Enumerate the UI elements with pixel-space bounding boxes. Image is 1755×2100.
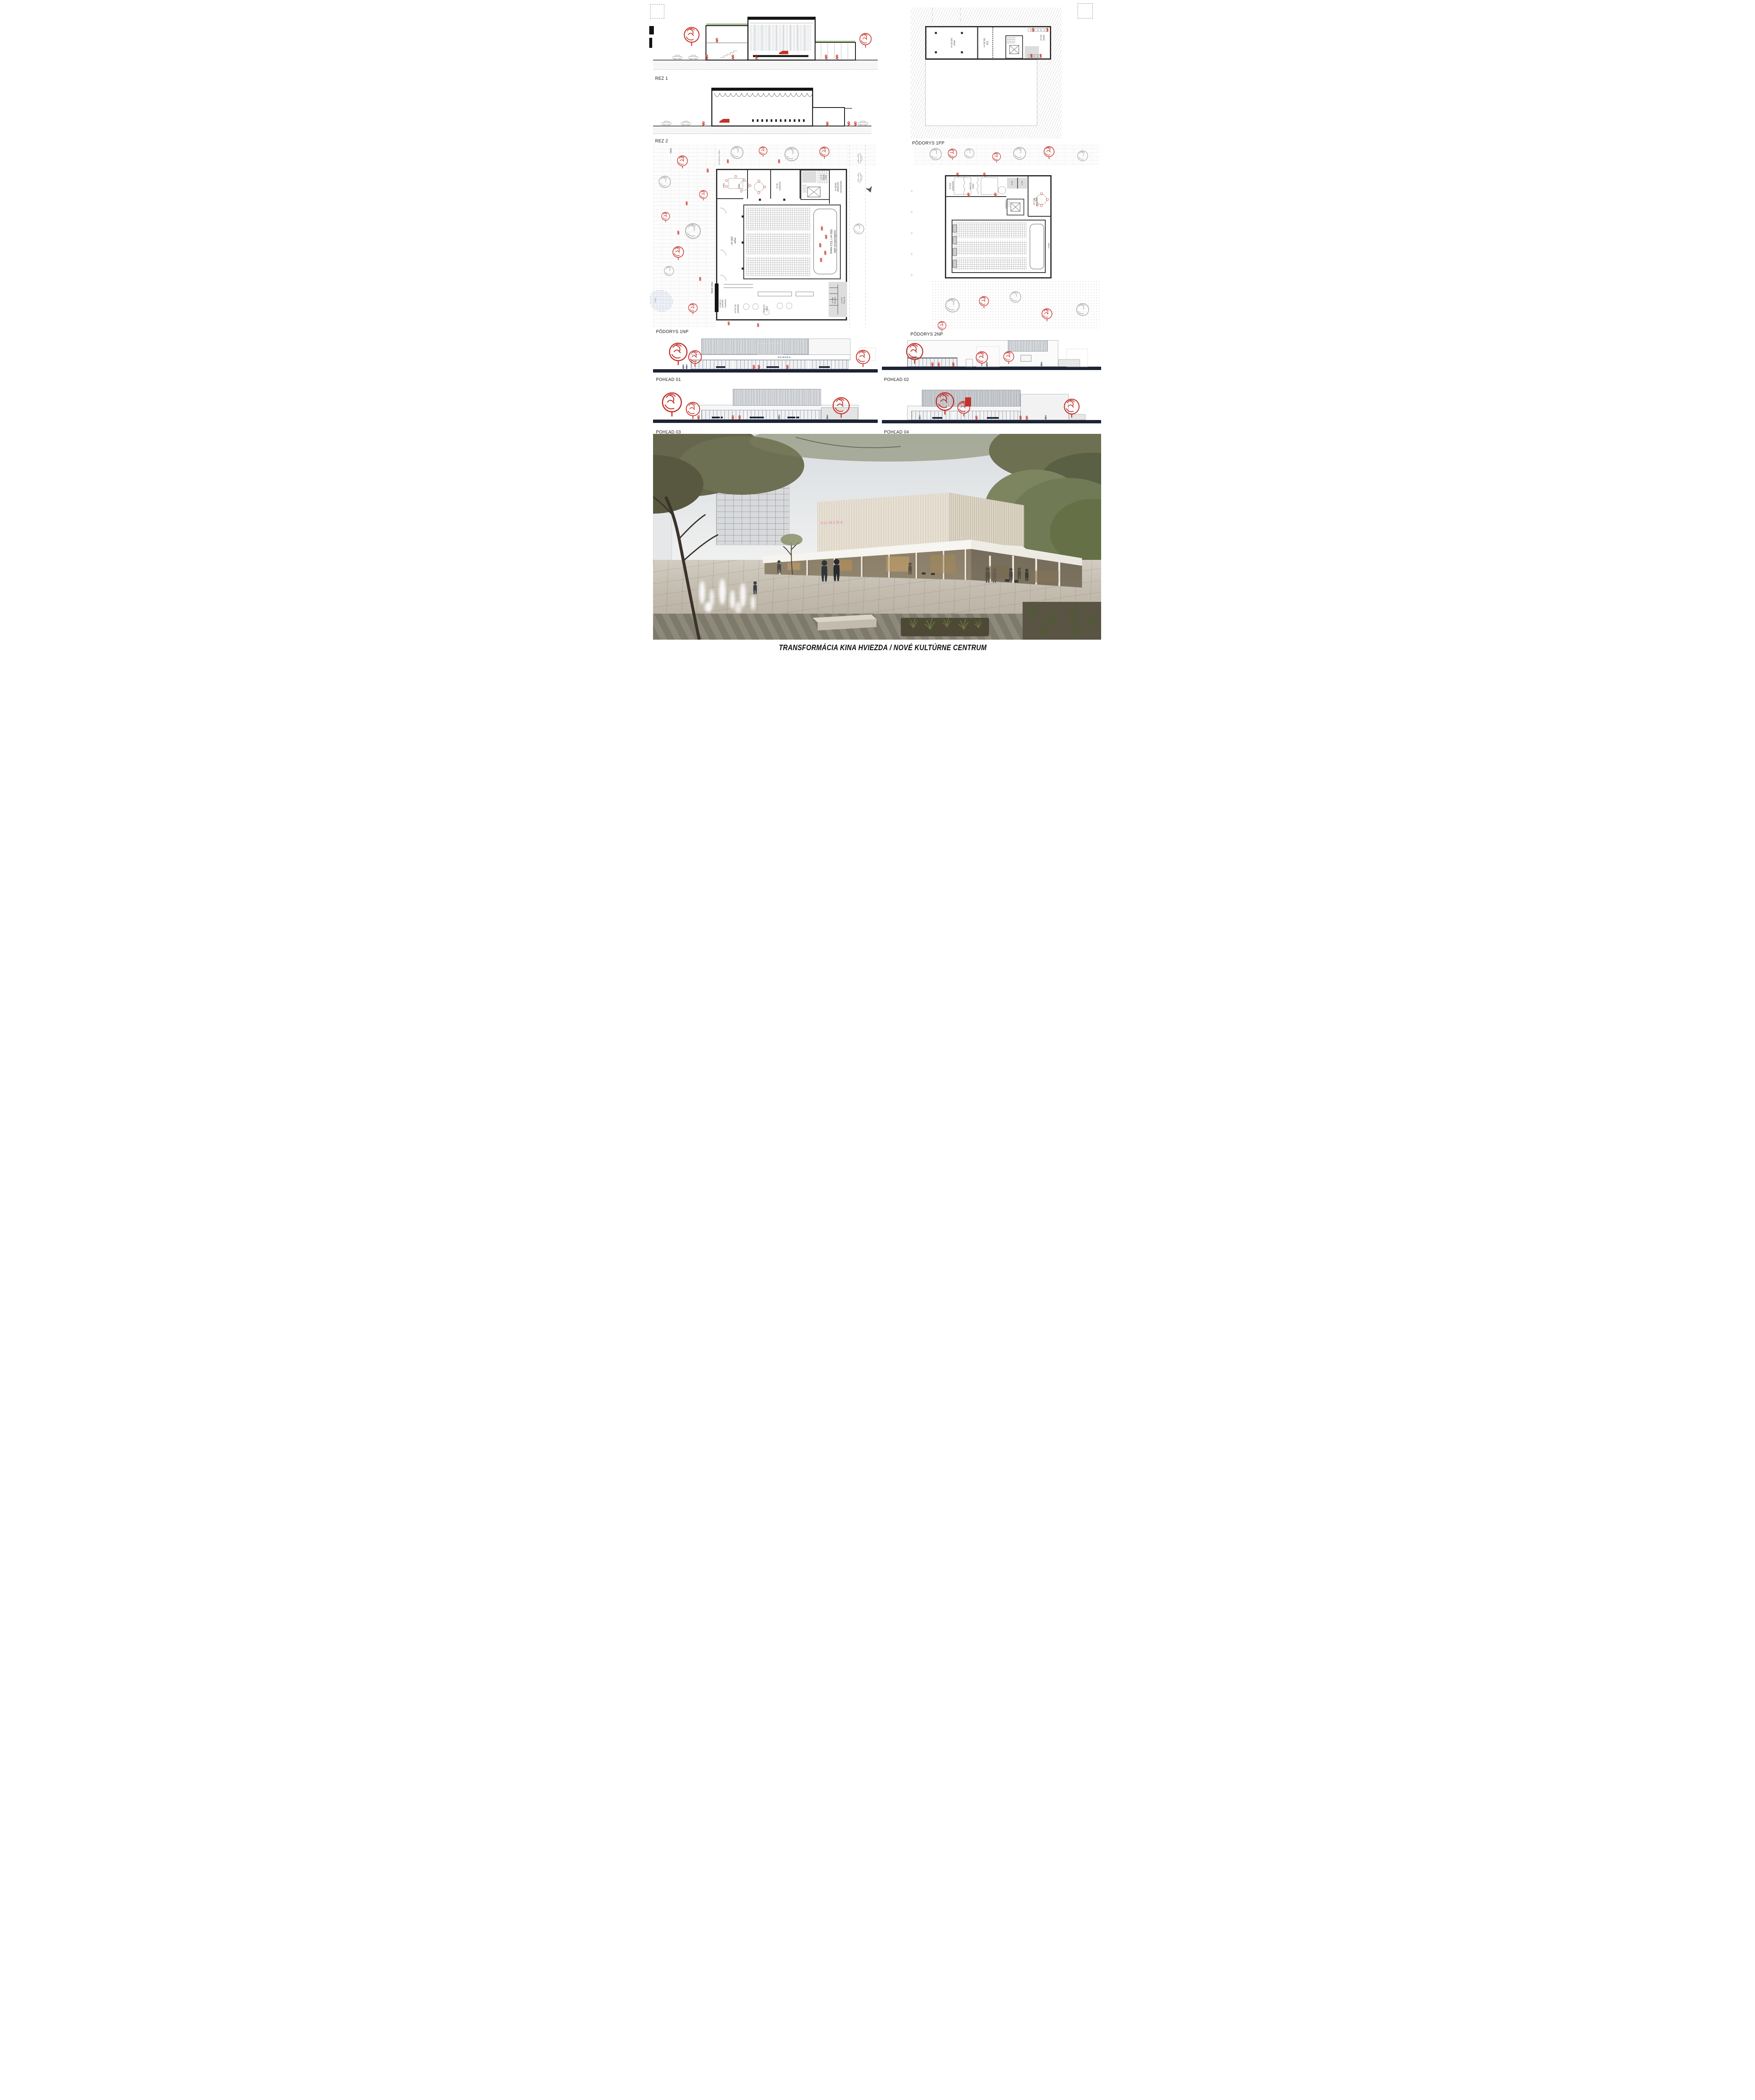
label-hlavny-vstup: hlavný vstup bbox=[711, 282, 714, 294]
room-label-backstage: zásobovanie/ backstage68,85 m² bbox=[834, 180, 842, 194]
room-label-sklad-2np: sklad17,4 m² bbox=[968, 183, 974, 190]
p03-drawing bbox=[653, 386, 878, 428]
presentation-board: REZ 1 REZ 2 bbox=[647, 0, 1109, 658]
elevation-03-panel bbox=[653, 386, 878, 428]
plan-1np-panel: multifunkčná sála650 m² / 513 miest foye… bbox=[653, 145, 876, 327]
section-rez2-panel bbox=[653, 82, 871, 136]
room-label-balkon: balkón bbox=[1047, 243, 1050, 249]
room-label-wc-z: wc ž. bbox=[1021, 181, 1023, 185]
plan-1np-label: PÔDORYS 1NP bbox=[656, 329, 689, 334]
room-label-wc-muzi: wc muži20,9 m² bbox=[831, 297, 836, 304]
elevation-01-panel: HVIEZDA bbox=[653, 335, 878, 375]
p1pp-drawing bbox=[910, 8, 1062, 139]
plan-2np-panel: kancelárie120 m² sklad17,4 m² kuchynka w… bbox=[906, 145, 1104, 330]
section-rez1-panel bbox=[653, 10, 878, 73]
render-foreground-figures bbox=[653, 434, 1101, 640]
p01-drawing bbox=[653, 335, 878, 375]
section-rez1-label: REZ 1 bbox=[655, 76, 668, 81]
p04-drawing bbox=[882, 386, 1101, 428]
room-label-sklad-stoliciek: sklad stoličiek8,4 m² bbox=[820, 173, 826, 182]
room-label-prenajom-2np: prenájom52,3 m² bbox=[1032, 197, 1038, 206]
label-street: rasa bbox=[670, 148, 673, 153]
room-label-1pp-sklad: sklad146,50 m² bbox=[949, 38, 955, 48]
room-label-recepcia: recepcia / kaviareň37,98 m² bbox=[718, 297, 727, 310]
rez1-drawing bbox=[653, 10, 878, 73]
room-label-kaviaren: kaviareň70,74 m² bbox=[733, 304, 739, 313]
section-rez2-label: REZ 2 bbox=[655, 139, 668, 144]
elevation-02-panel bbox=[882, 334, 1101, 375]
room-label-satna: šatňa33,58 m² bbox=[762, 304, 768, 313]
room-label-sala: multifunkčná sála650 m² / 513 miest bbox=[829, 229, 836, 254]
room-label-68: 68m² bbox=[721, 183, 724, 188]
room-label-1pp-tzb: TZB88,36 m² bbox=[982, 38, 988, 47]
p2np-drawing bbox=[906, 145, 1104, 330]
room-label-wc-zeny: wc ženy19,0 m² bbox=[840, 297, 845, 304]
elevation-01-label: POHĽAD 01 bbox=[656, 377, 681, 382]
room-label-wc-m: wc m. bbox=[1011, 181, 1013, 186]
room-label-kancelarie: kancelárie120 m² bbox=[948, 181, 954, 191]
room-label-prenajom-1np: prenájom55 m² bbox=[775, 182, 781, 191]
room-label-1pp-satne: šatne63 m² bbox=[1039, 35, 1044, 41]
label-alley: stretávková ulička bbox=[718, 150, 721, 165]
room-label-foyer: foyer300 m² bbox=[729, 236, 736, 245]
plan-1pp-panel: sklad146,50 m² TZB88,36 m² šatne63 m² bbox=[910, 8, 1062, 139]
room-label-45: 45m² bbox=[737, 184, 740, 189]
edge-mark-2 bbox=[649, 38, 652, 48]
p02-drawing bbox=[882, 334, 1101, 375]
rez2-drawing bbox=[653, 82, 871, 136]
render-view: HVIEZDA bbox=[653, 434, 1101, 640]
room-label-kuchynka: kuchynka bbox=[1005, 200, 1007, 208]
board-title: TRANSFORMÁCIA KINA HVIEZDA / NOVÉ KULTÚR… bbox=[779, 643, 986, 652]
elevation-04-panel bbox=[882, 386, 1101, 428]
corner-mark-topright bbox=[1078, 3, 1093, 18]
elevation-02-label: POHĽAD 02 bbox=[884, 377, 909, 382]
